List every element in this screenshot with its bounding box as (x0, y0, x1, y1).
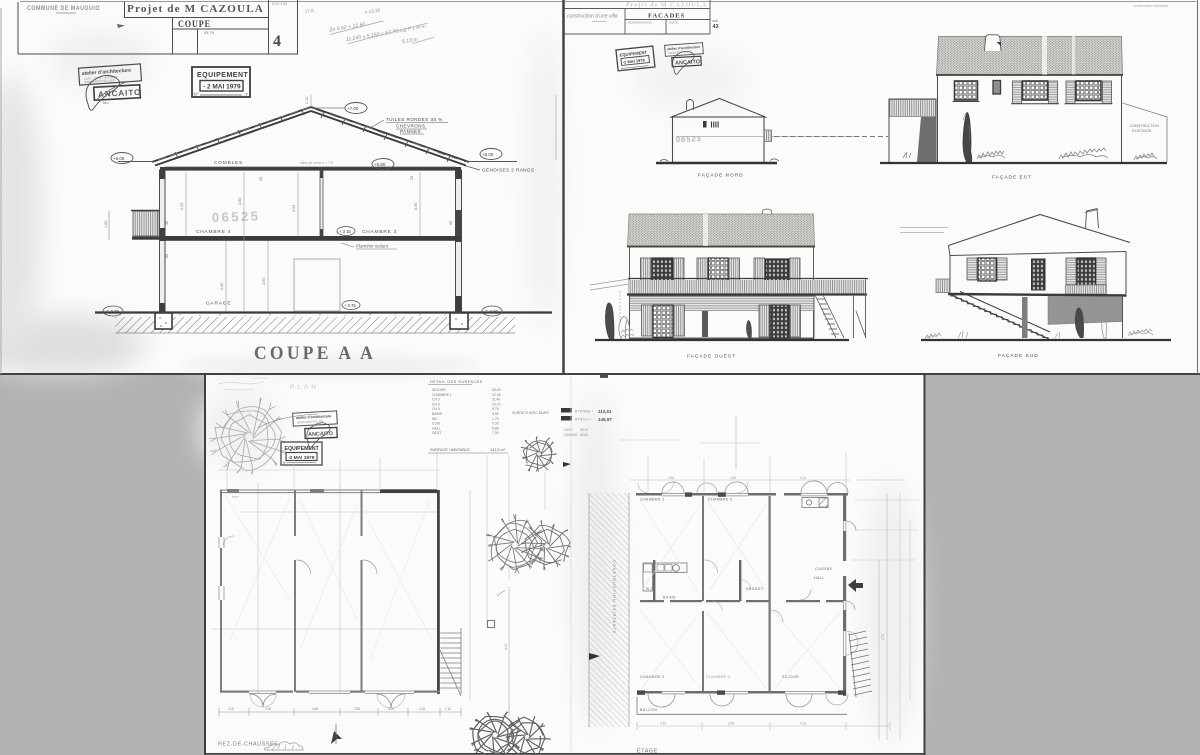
svg-text:1,70: 1,70 (492, 417, 499, 421)
svg-text:Projet de M CAZOULA: Projet de M CAZOULA (127, 4, 264, 15)
svg-text:WC: WC (432, 417, 438, 421)
svg-text:DETAIL DES SURFACES: DETAIL DES SURFACES (430, 380, 483, 384)
svg-text:+6.05: +6.05 (113, 156, 125, 161)
svg-text:11.240 x 5.150 = 57.78 m2: 11.240 x 5.150 = 57.78 m2 (346, 27, 408, 43)
svg-text:ECH 1.50: ECH 1.50 (272, 2, 287, 6)
svg-text:+5.80: +5.80 (374, 162, 386, 167)
svg-text:CHAMBRE 2: CHAMBRE 2 (708, 498, 733, 502)
svg-text:CHAMBRE 3: CHAMBRE 3 (640, 675, 665, 679)
svg-text:EQUIPEMENT: EQUIPEMENT (285, 446, 320, 452)
svg-text:BAINS: BAINS (432, 412, 443, 416)
svg-text:construction existante: construction existante (1133, 4, 1168, 8)
svg-text:11,40: 11,40 (492, 398, 500, 402)
svg-text:4.50: 4.50 (504, 643, 508, 650)
svg-text:CH 4: CH 4 (432, 407, 440, 411)
svg-text:3.60: 3.60 (730, 476, 736, 480)
svg-text:∓ 0.00: ∓ 0.00 (485, 309, 498, 314)
svg-text:COMMUNE DE MAUGUIO: COMMUNE DE MAUGUIO (27, 5, 100, 12)
svg-text:+ 3 10: + 3 10 (339, 229, 351, 234)
svg-text:DEGT: DEGT (432, 431, 441, 435)
svg-text:FAÇADE NORD: FAÇADE NORD (698, 173, 744, 179)
svg-text:CHAMBRE 3: CHAMBRE 3 (362, 229, 397, 235)
svg-text:SURFACE AVEC MURS: SURFACE AVEC MURS (512, 411, 549, 415)
svg-text:34000 MONTPELLIER: 34000 MONTPELLIER (297, 419, 324, 424)
svg-text:MODIFICATIONS: MODIFICATIONS (628, 21, 652, 25)
svg-text:Zo 5.62 + 12.60: Zo 5.62 + 12.60 (328, 22, 366, 34)
svg-text:3.20: 3.20 (419, 707, 425, 711)
svg-text:CONSTRUCTION EXISTANTE: CONSTRUCTION EXISTANTE (612, 560, 616, 634)
svg-text:BAINS: BAINS (663, 596, 676, 600)
svg-text:06523: 06523 (676, 134, 702, 144)
svg-text:2.25: 2.25 (180, 203, 184, 210)
svg-text:N°: N° (194, 92, 199, 97)
svg-text:SUITE: SUITE (669, 21, 678, 25)
svg-text:4.10: 4.10 (800, 722, 806, 726)
svg-text:construction d’une villa: construction d’une villa (567, 14, 618, 20)
svg-text:3.80: 3.80 (354, 707, 360, 711)
svg-text:CONSTRUCTION: CONSTRUCTION (1130, 124, 1159, 128)
svg-text:- 2 MAI 1979: - 2 MAI 1979 (203, 84, 241, 91)
svg-text:5.13 m: 5.13 m (402, 37, 419, 46)
svg-text:CH 2: CH 2 (432, 398, 440, 402)
svg-text:GARAGE: GARAGE (206, 301, 231, 307)
svg-text:90: 90 (449, 221, 453, 225)
svg-text:43: 43 (713, 24, 719, 30)
svg-text:Projet de M CAZOULA: Projet de M CAZOULA (626, 3, 707, 9)
svg-text:CHAMBRE 4: CHAMBRE 4 (196, 229, 231, 235)
svg-text:CHAMBRE 1: CHAMBRE 1 (432, 393, 452, 397)
svg-text:2.10: 2.10 (305, 97, 309, 104)
svg-text:ÉTAGE: ÉTAGE (637, 748, 658, 755)
svg-text:4: 4 (273, 33, 281, 50)
svg-text:COUPE: COUPE (178, 19, 211, 29)
svg-text:CHEVRONS: CHEVRONS (396, 124, 426, 129)
svg-text:2.00: 2.00 (220, 283, 224, 290)
svg-text:30: 30 (165, 221, 169, 225)
svg-text:CHAMBRE 1: CHAMBRE 1 (640, 498, 665, 502)
svg-text:45: 45 (259, 177, 263, 181)
svg-text:28,00: 28,00 (492, 388, 501, 392)
svg-text:3.45: 3.45 (660, 722, 666, 726)
svg-text:63,60: 63,60 (580, 433, 588, 437)
svg-text:+ 0.75: + 0.75 (344, 303, 356, 308)
svg-text:04 79: 04 79 (204, 30, 215, 35)
svg-text:∓ 0.00: ∓ 0.00 (106, 309, 119, 314)
svg-text:CUISINE: CUISINE (815, 567, 833, 571)
svg-text:CH 3: CH 3 (432, 402, 440, 406)
svg-text:4.50: 4.50 (265, 707, 271, 711)
svg-text:PLAN: PLAN (290, 384, 319, 391)
svg-text:2.70: 2.70 (881, 634, 885, 640)
svg-text:10,70: 10,70 (492, 402, 501, 406)
svg-text:COMBLES: COMBLES (214, 160, 243, 166)
svg-text:abris: abris (232, 495, 239, 499)
svg-text:25: 25 (410, 176, 414, 180)
svg-text:COUPE A A: COUPE A A (254, 344, 376, 364)
svg-text:TUILES RONDES 30 %: TUILES RONDES 30 % (386, 117, 443, 122)
svg-text:146,97: 146,97 (598, 417, 612, 422)
svg-text:W.C.: W.C. (646, 587, 655, 591)
svg-text:7,90: 7,90 (492, 431, 499, 435)
svg-text:+7.00: +7.00 (347, 106, 359, 111)
svg-text:BALCON: BALCON (640, 708, 657, 712)
svg-text:2.65: 2.65 (262, 278, 266, 285)
svg-text:4.10: 4.10 (800, 476, 806, 480)
svg-text:FAÇADE SUD: FAÇADE SUD (998, 353, 1039, 359)
svg-text:112,61: 112,61 (598, 409, 612, 414)
svg-text:atelier d’architecture: atelier d’architecture (296, 414, 332, 420)
svg-text:CHAMBRE 4: CHAMBRE 4 (706, 675, 731, 679)
svg-text:9,75: 9,75 (492, 407, 499, 411)
svg-text:FAÇADE OUEST: FAÇADE OUEST (687, 354, 736, 360)
svg-text:3.60: 3.60 (668, 476, 674, 480)
svg-text:1.00: 1.00 (104, 221, 108, 228)
svg-text:REZ-DE-CHAUSSÉE: REZ-DE-CHAUSSÉE (218, 741, 279, 748)
svg-text:0.04: 0.04 (292, 205, 296, 212)
svg-text::7: :7 (244, 92, 248, 97)
svg-text:n 13.18: n 13.18 (365, 7, 381, 14)
svg-text:Plancher isolant: Plancher isolant (356, 244, 389, 249)
svg-text:+6.05: +6.05 (482, 152, 494, 157)
svg-text:SEJOUR: SEJOUR (432, 388, 446, 392)
svg-text:-2 MAI 1979: -2 MAI 1979 (288, 455, 315, 461)
svg-text:3.00: 3.00 (228, 707, 234, 711)
svg-text:HALL: HALL (814, 576, 825, 580)
svg-text:3.60: 3.60 (728, 722, 734, 726)
svg-text:DEGAGT: DEGAGT (746, 587, 764, 591)
svg-text:EQUIPEMENT: EQUIPEMENT (197, 72, 249, 79)
svg-text:FAÇADE EST: FAÇADE EST (992, 175, 1032, 181)
svg-text:laine de verre e = 7.5: laine de verre e = 7.5 (300, 161, 333, 165)
svg-text:ANCAITO: ANCAITO (308, 431, 334, 438)
svg-text:0.05: 0.05 (414, 203, 418, 210)
svg-text:28,10: 28,10 (580, 428, 588, 432)
svg-text:3.00: 3.00 (388, 707, 394, 711)
svg-text:141,6 m²: 141,6 m² (490, 448, 506, 452)
svg-text:CUIS: CUIS (432, 422, 441, 426)
svg-text:4.60: 4.60 (312, 707, 318, 711)
svg-text:Mo: Mo (103, 100, 109, 105)
svg-text:PANNES: PANNES (400, 129, 421, 134)
svg-text:12,05: 12,05 (492, 393, 501, 397)
svg-text:9,30: 9,30 (492, 422, 499, 426)
svg-text:06525: 06525 (212, 208, 261, 225)
svg-text:65: 65 (165, 254, 169, 258)
svg-text:FACADES: FACADES (648, 13, 685, 20)
svg-text:RT ETAGE +: RT ETAGE + (575, 410, 593, 414)
svg-text:EXISTANTE: EXISTANTE (1132, 129, 1152, 133)
svg-text:17.8: 17.8 (304, 8, 314, 14)
svg-text:SURFACE HABITABLE: SURFACE HABITABLE (430, 448, 470, 452)
svg-text:5,80: 5,80 (492, 426, 499, 430)
svg-text:GENOISES 2 RANGS: GENOISES 2 RANGS (482, 168, 535, 173)
svg-text:ech: ech (713, 19, 719, 23)
svg-text:2.10: 2.10 (445, 707, 451, 711)
svg-text:HALL: HALL (432, 426, 441, 430)
svg-text:4,90: 4,90 (492, 412, 499, 416)
svg-text:RT R.D.C +: RT R.D.C + (575, 418, 592, 422)
svg-text:2.50: 2.50 (238, 198, 242, 205)
